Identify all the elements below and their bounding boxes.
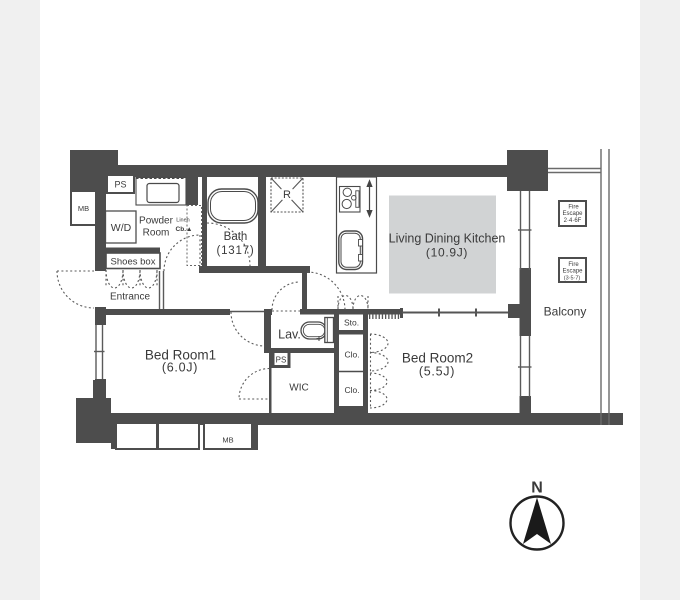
- svg-text:Fire: Fire: [568, 262, 579, 268]
- svg-text:Escape: Escape: [562, 269, 583, 275]
- svg-text:(1317): (1317): [216, 245, 254, 257]
- svg-text:Bath: Bath: [224, 231, 248, 243]
- svg-text:R: R: [283, 189, 291, 201]
- svg-text:2·4·6F: 2·4·6F: [564, 218, 582, 224]
- svg-text:Balcony: Balcony: [544, 305, 587, 319]
- svg-text:Lav.: Lav.: [278, 328, 301, 342]
- svg-text:(3·5·7): (3·5·7): [564, 276, 581, 282]
- svg-text:N: N: [531, 480, 543, 497]
- svg-text:MB: MB: [78, 204, 89, 213]
- svg-text:Clo.: Clo.: [344, 350, 359, 360]
- svg-text:MB: MB: [222, 436, 233, 445]
- svg-text:(5.5J): (5.5J): [419, 365, 455, 379]
- svg-text:W/D: W/D: [111, 222, 132, 234]
- svg-text:Linen: Linen: [176, 218, 189, 224]
- svg-text:Bed Room2: Bed Room2: [402, 351, 473, 366]
- svg-text:Clo.: Clo.: [344, 385, 359, 395]
- svg-text:Room: Room: [143, 228, 170, 239]
- svg-text:Powder: Powder: [139, 216, 174, 227]
- svg-text:Sto.: Sto.: [344, 318, 359, 328]
- svg-text:Escape: Escape: [562, 211, 583, 217]
- svg-text:Cb.▲: Cb.▲: [176, 226, 193, 233]
- svg-text:WIC: WIC: [289, 383, 308, 394]
- svg-text:Living Dining Kitchen: Living Dining Kitchen: [389, 232, 506, 246]
- svg-text:Entrance: Entrance: [110, 292, 150, 303]
- svg-text:(10.9J): (10.9J): [426, 246, 468, 260]
- svg-text:Shoes box: Shoes box: [111, 257, 156, 268]
- svg-text:Fire: Fire: [568, 205, 579, 211]
- svg-text:PS: PS: [276, 356, 287, 365]
- svg-text:PS: PS: [114, 180, 126, 190]
- svg-text:(6.0J): (6.0J): [162, 361, 198, 375]
